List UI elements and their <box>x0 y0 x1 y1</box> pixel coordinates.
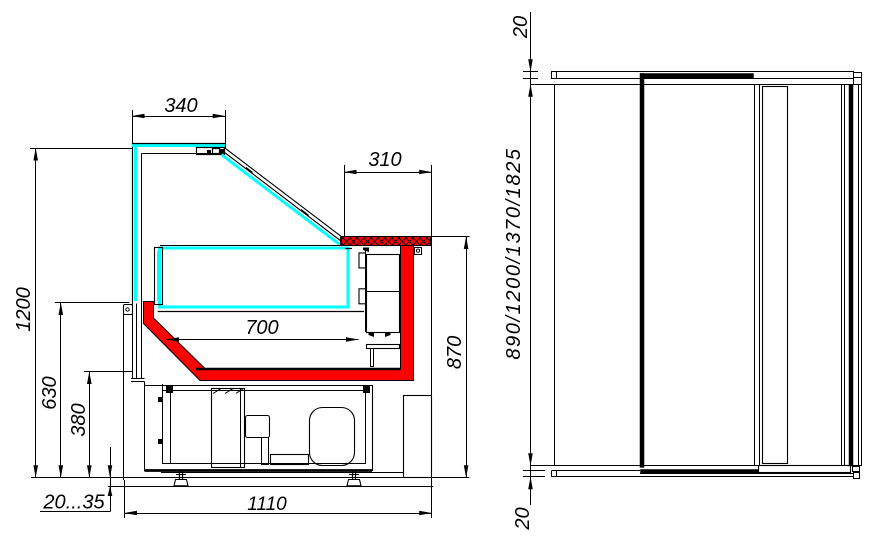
svg-text:20: 20 <box>512 507 534 530</box>
svg-text:890/1200/1370/1825: 890/1200/1370/1825 <box>503 147 525 359</box>
svg-text:870: 870 <box>444 336 466 369</box>
svg-text:340: 340 <box>164 95 197 117</box>
svg-text:1110: 1110 <box>247 494 287 515</box>
svg-text:630: 630 <box>39 376 61 409</box>
svg-text:380: 380 <box>68 403 90 436</box>
svg-text:20...35: 20...35 <box>42 492 105 514</box>
svg-text:700: 700 <box>245 317 278 339</box>
svg-text:310: 310 <box>368 149 401 171</box>
svg-text:1200: 1200 <box>13 287 35 332</box>
svg-text:20: 20 <box>510 16 532 39</box>
